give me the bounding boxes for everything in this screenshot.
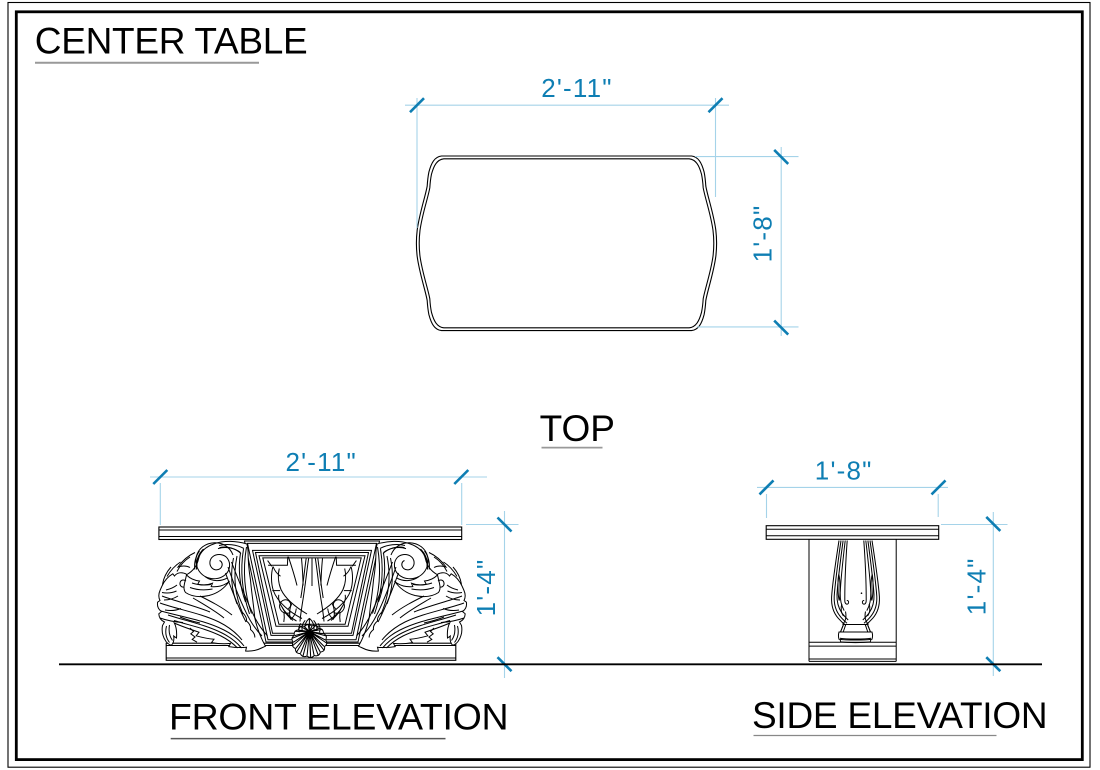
svg-text:SIDE ELEVATION: SIDE ELEVATION [752, 695, 1047, 736]
svg-text:2'-11": 2'-11" [285, 447, 357, 477]
svg-text:1'-8": 1'-8" [815, 456, 873, 486]
svg-text:2'-11": 2'-11" [541, 73, 613, 103]
svg-text:FRONT ELEVATION: FRONT ELEVATION [169, 695, 508, 737]
svg-text:1'-4": 1'-4" [962, 557, 992, 615]
svg-text:CENTER TABLE: CENTER TABLE [35, 20, 308, 61]
svg-text:1'-8": 1'-8" [748, 205, 778, 263]
svg-text:TOP: TOP [540, 408, 615, 449]
svg-text:1'-4": 1'-4" [471, 559, 501, 617]
